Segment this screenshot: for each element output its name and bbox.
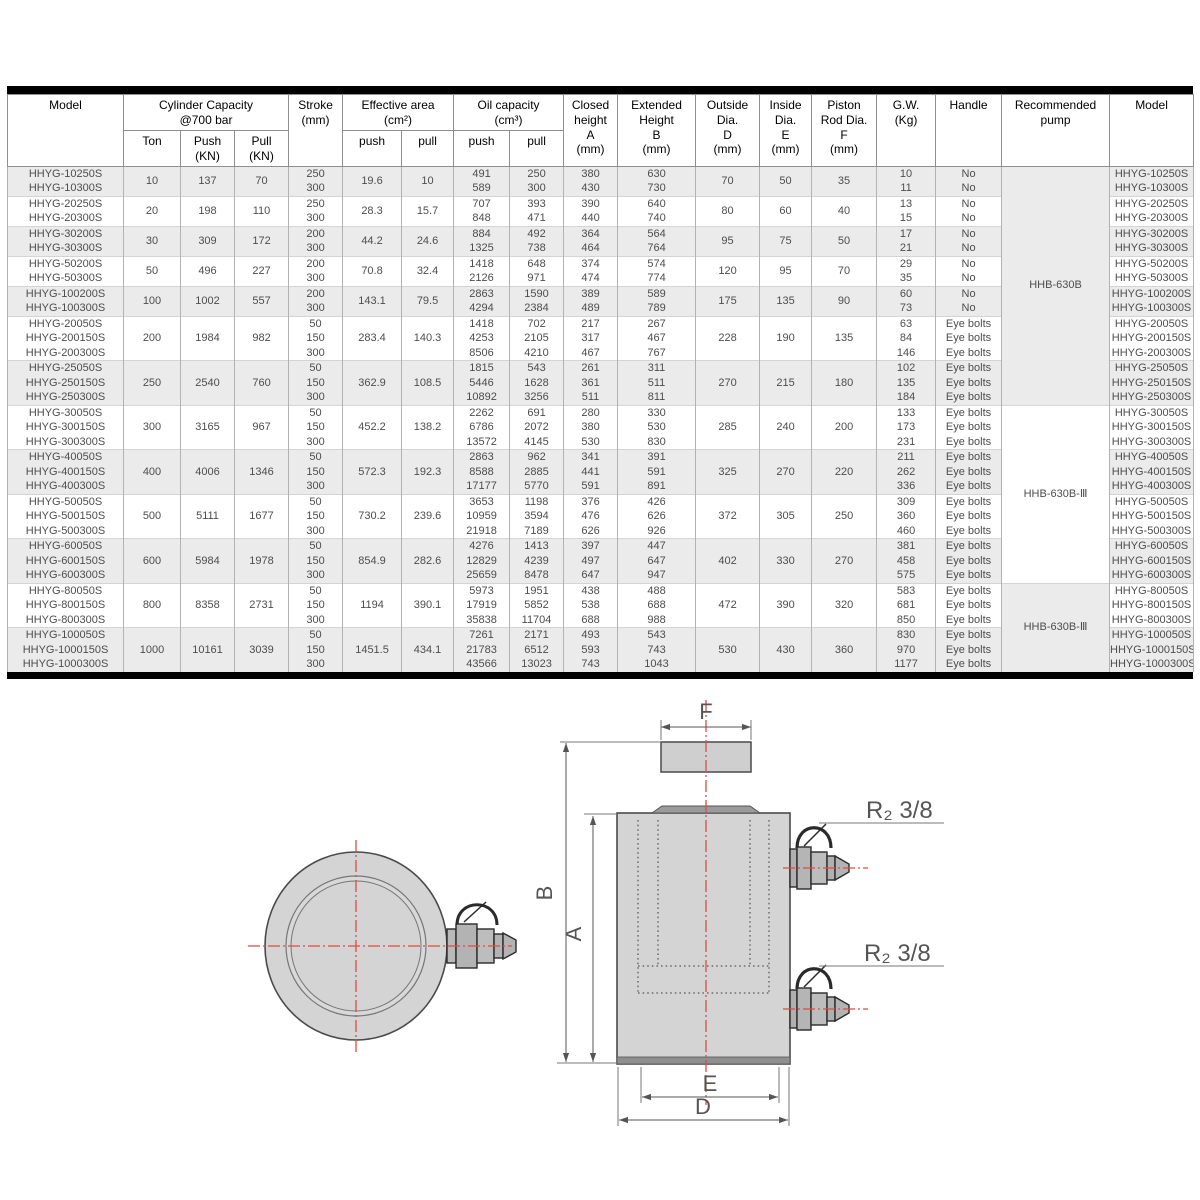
cell-inside-dia: 95 (760, 256, 812, 286)
cell-closed-height: 591 (564, 479, 618, 494)
cell-gw: 970 (877, 643, 936, 658)
cell-model: HHYG-500150S (8, 509, 124, 524)
cell-pull-kn: 227 (235, 256, 289, 286)
cell-gw: 211 (877, 450, 936, 465)
cell-extended-height: 640 (618, 196, 696, 211)
cell-model-right: HHYG-500300S (1110, 524, 1194, 539)
cell-eff-area-push: 854.9 (343, 539, 402, 584)
cell-oil-pull: 2105 (510, 331, 564, 346)
cell-oil-pull: 11704 (510, 613, 564, 628)
cell-oil-pull: 962 (510, 450, 564, 465)
cell-gw: 84 (877, 331, 936, 346)
cell-oil-pull: 3594 (510, 509, 564, 524)
cell-ton: 500 (124, 494, 181, 539)
dim-label-e: E (703, 1071, 718, 1096)
cell-extended-height: 530 (618, 420, 696, 435)
cell-pull-kn: 760 (235, 361, 289, 406)
cell-oil-push: 589 (454, 181, 510, 196)
cell-oil-pull: 738 (510, 241, 564, 256)
cell-eff-area-push: 28.3 (343, 196, 402, 226)
cell-oil-push: 21783 (454, 643, 510, 658)
cell-extended-height: 267 (618, 316, 696, 331)
cell-gw: 231 (877, 435, 936, 450)
cell-model: HHYG-200150S (8, 331, 124, 346)
cell-extended-height: 1043 (618, 657, 696, 672)
cell-model: HHYG-1000300S (8, 657, 124, 672)
cell-gw: 60 (877, 286, 936, 301)
cell-oil-pull: 2885 (510, 465, 564, 480)
cell-stroke: 150 (289, 376, 343, 391)
cell-model-right: HHYG-30200S (1110, 226, 1194, 241)
cell-model-right: HHYG-800150S (1110, 598, 1194, 613)
cell-gw: 21 (877, 241, 936, 256)
cell-handle: No (936, 226, 1002, 241)
cell-eff-area-pull: 15.7 (402, 196, 454, 226)
cell-extended-height: 511 (618, 376, 696, 391)
cell-handle: Eye bolts (936, 465, 1002, 480)
dim-label-b: B (532, 886, 557, 901)
cell-handle: No (936, 241, 1002, 256)
cell-outside-dia: 530 (696, 628, 760, 672)
cell-handle: Eye bolts (936, 598, 1002, 613)
coupler-upper-icon (783, 824, 868, 889)
cell-model-right: HHYG-20250S (1110, 196, 1194, 211)
col-header-extended-height: ExtendedHeight B(mm) (618, 95, 696, 167)
cell-model-right: HHYG-20050S (1110, 316, 1194, 331)
cell-model-right: HHYG-40050S (1110, 450, 1194, 465)
cell-push-kn: 496 (181, 256, 235, 286)
cell-eff-area-pull: 192.3 (402, 450, 454, 495)
cell-model: HHYG-100200S (8, 286, 124, 301)
cell-oil-push: 2262 (454, 405, 510, 420)
cell-model-right: HHYG-800300S (1110, 613, 1194, 628)
cell-eff-area-pull: 138.2 (402, 405, 454, 450)
cell-oil-pull: 3256 (510, 390, 564, 405)
subcol-header-area-pull: pull (402, 131, 454, 167)
cell-closed-height: 489 (564, 301, 618, 316)
cell-model: HHYG-250150S (8, 376, 124, 391)
cell-inside-dia: 215 (760, 361, 812, 406)
cell-eff-area-push: 143.1 (343, 286, 402, 316)
cell-gw: 184 (877, 390, 936, 405)
cell-extended-height: 830 (618, 435, 696, 450)
cell-gw: 381 (877, 539, 936, 554)
cell-gw: 15 (877, 211, 936, 226)
cell-piston-rod-dia: 70 (812, 256, 877, 286)
cell-gw: 29 (877, 256, 936, 271)
cell-extended-height: 688 (618, 598, 696, 613)
cell-outside-dia: 402 (696, 539, 760, 584)
cell-outside-dia: 270 (696, 361, 760, 406)
cell-model: HHYG-600150S (8, 554, 124, 569)
cell-handle: No (936, 196, 1002, 211)
cell-stroke: 300 (289, 241, 343, 256)
cell-stroke: 150 (289, 509, 343, 524)
cell-oil-push: 6786 (454, 420, 510, 435)
cell-ton: 100 (124, 286, 181, 316)
cell-oil-push: 25659 (454, 568, 510, 583)
cell-recommended-pump: HHB-630B-Ⅲ (1002, 405, 1110, 583)
cell-model: HHYG-25050S (8, 361, 124, 376)
base-plate (617, 1057, 790, 1064)
cell-piston-rod-dia: 40 (812, 196, 877, 226)
cell-piston-rod-dia: 220 (812, 450, 877, 495)
cell-oil-push: 2126 (454, 271, 510, 286)
cell-extended-height: 764 (618, 241, 696, 256)
cell-handle: Eye bolts (936, 613, 1002, 628)
cell-stroke: 300 (289, 568, 343, 583)
cell-model-right: HHYG-30050S (1110, 405, 1194, 420)
cell-closed-height: 438 (564, 583, 618, 598)
cell-model: HHYG-250300S (8, 390, 124, 405)
cell-model: HHYG-50200S (8, 256, 124, 271)
cell-model-right: HHYG-100300S (1110, 301, 1194, 316)
cell-oil-pull: 393 (510, 196, 564, 211)
cell-oil-pull: 8478 (510, 568, 564, 583)
cell-extended-height: 947 (618, 568, 696, 583)
cell-gw: 460 (877, 524, 936, 539)
cell-gw: 309 (877, 494, 936, 509)
cell-model: HHYG-30050S (8, 405, 124, 420)
cell-eff-area-pull: 390.1 (402, 583, 454, 628)
cell-oil-pull: 7189 (510, 524, 564, 539)
cell-gw: 262 (877, 465, 936, 480)
cell-inside-dia: 60 (760, 196, 812, 226)
cell-oil-pull: 2171 (510, 628, 564, 643)
subcol-header-push-kn: Push(KN) (181, 131, 235, 167)
cell-closed-height: 441 (564, 465, 618, 480)
subcol-header-oil-push: push (454, 131, 510, 167)
cell-gw: 336 (877, 479, 936, 494)
coupler-top-view-icon (447, 902, 516, 968)
cell-extended-height: 891 (618, 479, 696, 494)
cell-handle: Eye bolts (936, 361, 1002, 376)
col-header-stroke: Stroke (mm) (289, 95, 343, 167)
cell-model-right: HHYG-100050S (1110, 628, 1194, 643)
cell-handle: Eye bolts (936, 643, 1002, 658)
cell-model-right: HHYG-200150S (1110, 331, 1194, 346)
cell-handle: Eye bolts (936, 494, 1002, 509)
cell-eff-area-pull: 239.6 (402, 494, 454, 539)
cell-eff-area-pull: 140.3 (402, 316, 454, 361)
cell-extended-height: 330 (618, 405, 696, 420)
cell-eff-area-push: 362.9 (343, 361, 402, 406)
cell-closed-height: 430 (564, 181, 618, 196)
cell-gw: 681 (877, 598, 936, 613)
cell-oil-push: 7261 (454, 628, 510, 643)
cell-oil-push: 10959 (454, 509, 510, 524)
cell-stroke: 150 (289, 643, 343, 658)
port-label-lower: R₂ 3/8 (864, 940, 931, 967)
cell-gw: 173 (877, 420, 936, 435)
cell-outside-dia: 325 (696, 450, 760, 495)
cell-oil-pull: 1413 (510, 539, 564, 554)
cell-model: HHYG-400300S (8, 479, 124, 494)
cell-gw: 133 (877, 405, 936, 420)
cell-model-right: HHYG-400150S (1110, 465, 1194, 480)
cell-eff-area-push: 1194 (343, 583, 402, 628)
cell-closed-height: 397 (564, 539, 618, 554)
cell-closed-height: 493 (564, 628, 618, 643)
cell-closed-height: 317 (564, 331, 618, 346)
cell-ton: 800 (124, 583, 181, 628)
cell-closed-height: 440 (564, 211, 618, 226)
cell-stroke: 50 (289, 539, 343, 554)
spec-row: HHYG-80050S80083582731501194390.15973195… (8, 583, 1194, 598)
cell-gw: 575 (877, 568, 936, 583)
cell-oil-push: 491 (454, 166, 510, 181)
spec-row: HHYG-10250S101377025019.6104912503806307… (8, 166, 1194, 181)
cell-stroke: 150 (289, 331, 343, 346)
cell-outside-dia: 472 (696, 583, 760, 628)
cell-gw: 102 (877, 361, 936, 376)
cell-eff-area-pull: 282.6 (402, 539, 454, 584)
cell-gw: 1177 (877, 657, 936, 672)
cell-model: HHYG-20250S (8, 196, 124, 211)
cell-model-right: HHYG-1000150S (1110, 643, 1194, 658)
cell-outside-dia: 175 (696, 286, 760, 316)
col-header-handle: Handle (936, 95, 1002, 167)
cell-oil-push: 884 (454, 226, 510, 241)
cell-eff-area-pull: 434.1 (402, 628, 454, 672)
cell-handle: Eye bolts (936, 405, 1002, 420)
cell-oil-push: 17919 (454, 598, 510, 613)
cell-extended-height: 574 (618, 256, 696, 271)
cell-extended-height: 774 (618, 271, 696, 286)
cell-closed-height: 364 (564, 226, 618, 241)
capacity-line2: @700 bar (124, 113, 288, 128)
cell-ton: 1000 (124, 628, 181, 672)
technical-drawing: F B A E D R₂ 3/8 R₂ 3/8 (225, 685, 1045, 1185)
cell-oil-push: 1418 (454, 256, 510, 271)
cell-piston-rod-dia: 270 (812, 539, 877, 584)
cell-ton: 600 (124, 539, 181, 584)
cell-oil-pull: 5852 (510, 598, 564, 613)
cell-push-kn: 309 (181, 226, 235, 256)
cell-eff-area-push: 19.6 (343, 166, 402, 196)
cell-extended-height: 447 (618, 539, 696, 554)
cell-handle: Eye bolts (936, 331, 1002, 346)
cell-oil-pull: 5770 (510, 479, 564, 494)
cell-eff-area-pull: 108.5 (402, 361, 454, 406)
cell-stroke: 50 (289, 361, 343, 376)
cell-extended-height: 589 (618, 286, 696, 301)
cell-model: HHYG-1000150S (8, 643, 124, 658)
cell-closed-height: 389 (564, 286, 618, 301)
col-header-model: Model (8, 95, 124, 167)
cell-closed-height: 380 (564, 166, 618, 181)
cell-pull-kn: 1978 (235, 539, 289, 584)
cell-ton: 20 (124, 196, 181, 226)
cell-stroke: 300 (289, 435, 343, 450)
cell-model: HHYG-40050S (8, 450, 124, 465)
cell-ton: 50 (124, 256, 181, 286)
cell-stroke: 300 (289, 346, 343, 361)
cell-closed-height: 530 (564, 435, 618, 450)
cell-stroke: 300 (289, 524, 343, 539)
cell-closed-height: 217 (564, 316, 618, 331)
cell-model: HHYG-10250S (8, 166, 124, 181)
subcol-header-pull-kn: Pull(KN) (235, 131, 289, 167)
cell-oil-push: 3653 (454, 494, 510, 509)
cell-extended-height: 543 (618, 628, 696, 643)
cell-extended-height: 767 (618, 346, 696, 361)
cell-oil-pull: 13023 (510, 657, 564, 672)
cell-model-right: HHYG-200300S (1110, 346, 1194, 361)
coupler-lower-icon (783, 965, 868, 1030)
stroke-line2: (mm) (289, 113, 342, 128)
cell-inside-dia: 135 (760, 286, 812, 316)
cell-stroke: 250 (289, 166, 343, 181)
cell-oil-push: 21918 (454, 524, 510, 539)
cell-handle: No (936, 301, 1002, 316)
cell-closed-height: 361 (564, 376, 618, 391)
cell-push-kn: 198 (181, 196, 235, 226)
cell-oil-push: 13572 (454, 435, 510, 450)
cell-extended-height: 789 (618, 301, 696, 316)
cell-extended-height: 630 (618, 166, 696, 181)
cell-model-right: HHYG-1000300S (1110, 657, 1194, 672)
cell-eff-area-push: 730.2 (343, 494, 402, 539)
cylinder-body (617, 813, 790, 1064)
cell-oil-pull: 1590 (510, 286, 564, 301)
cell-handle: Eye bolts (936, 420, 1002, 435)
cell-inside-dia: 240 (760, 405, 812, 450)
cell-push-kn: 2540 (181, 361, 235, 406)
cell-handle: Eye bolts (936, 479, 1002, 494)
cell-model-right: HHYG-25050S (1110, 361, 1194, 376)
cell-outside-dia: 228 (696, 316, 760, 361)
cell-stroke: 250 (289, 196, 343, 211)
cell-oil-push: 1325 (454, 241, 510, 256)
cell-oil-push: 4253 (454, 331, 510, 346)
capacity-line1: Cylinder Capacity (124, 98, 288, 113)
spec-table-grid: Model Cylinder Capacity @700 bar Stroke … (7, 94, 1194, 672)
cell-push-kn: 10161 (181, 628, 235, 672)
cell-outside-dia: 120 (696, 256, 760, 286)
cell-oil-push: 8588 (454, 465, 510, 480)
cell-model-right: HHYG-30300S (1110, 241, 1194, 256)
cell-inside-dia: 50 (760, 166, 812, 196)
cell-eff-area-pull: 79.5 (402, 286, 454, 316)
cell-piston-rod-dia: 200 (812, 405, 877, 450)
cell-gw: 13 (877, 196, 936, 211)
cell-stroke: 50 (289, 405, 343, 420)
cell-extended-height: 591 (618, 465, 696, 480)
cell-model-right: HHYG-50300S (1110, 271, 1194, 286)
oil-capacity-line1: Oil capacity (454, 98, 563, 113)
cell-stroke: 50 (289, 316, 343, 331)
cell-pull-kn: 982 (235, 316, 289, 361)
cell-handle: Eye bolts (936, 509, 1002, 524)
cell-piston-rod-dia: 320 (812, 583, 877, 628)
cell-closed-height: 374 (564, 256, 618, 271)
cell-model: HHYG-100300S (8, 301, 124, 316)
cell-oil-push: 17177 (454, 479, 510, 494)
cell-oil-pull: 492 (510, 226, 564, 241)
cell-model-right: HHYG-20300S (1110, 211, 1194, 226)
cell-model: HHYG-30300S (8, 241, 124, 256)
cell-handle: Eye bolts (936, 554, 1002, 569)
cell-oil-push: 2863 (454, 286, 510, 301)
cell-handle: Eye bolts (936, 524, 1002, 539)
cell-stroke: 300 (289, 181, 343, 196)
cell-model: HHYG-800150S (8, 598, 124, 613)
cell-model: HHYG-20050S (8, 316, 124, 331)
cell-model-right: HHYG-50200S (1110, 256, 1194, 271)
cell-ton: 400 (124, 450, 181, 495)
cell-gw: 10 (877, 166, 936, 181)
cell-piston-rod-dia: 90 (812, 286, 877, 316)
cell-gw: 850 (877, 613, 936, 628)
cell-outside-dia: 95 (696, 226, 760, 256)
cell-oil-pull: 250 (510, 166, 564, 181)
cell-inside-dia: 270 (760, 450, 812, 495)
cell-model: HHYG-20300S (8, 211, 124, 226)
cell-model-right: HHYG-80050S (1110, 583, 1194, 598)
cell-model: HHYG-300150S (8, 420, 124, 435)
cell-model-right: HHYG-600150S (1110, 554, 1194, 569)
cell-model: HHYG-10300S (8, 181, 124, 196)
cell-piston-rod-dia: 135 (812, 316, 877, 361)
cell-pull-kn: 172 (235, 226, 289, 256)
cell-stroke: 300 (289, 301, 343, 316)
cell-model: HHYG-80050S (8, 583, 124, 598)
cell-model-right: HHYG-60050S (1110, 539, 1194, 554)
cell-gw: 17 (877, 226, 936, 241)
cell-model: HHYG-600300S (8, 568, 124, 583)
cell-extended-height: 647 (618, 554, 696, 569)
cell-push-kn: 3165 (181, 405, 235, 450)
cell-oil-push: 2863 (454, 450, 510, 465)
cell-model: HHYG-100050S (8, 628, 124, 643)
cell-handle: Eye bolts (936, 539, 1002, 554)
subcol-header-ton: Ton (124, 131, 181, 167)
cell-handle: Eye bolts (936, 450, 1002, 465)
cell-oil-pull: 2384 (510, 301, 564, 316)
cell-pull-kn: 1346 (235, 450, 289, 495)
cell-stroke: 300 (289, 479, 343, 494)
cell-closed-height: 743 (564, 657, 618, 672)
cell-stroke: 300 (289, 657, 343, 672)
cell-push-kn: 4006 (181, 450, 235, 495)
cell-stroke: 150 (289, 598, 343, 613)
cell-oil-push: 4276 (454, 539, 510, 554)
col-header-inside-dia: InsideDia. E(mm) (760, 95, 812, 167)
cell-eff-area-push: 1451.5 (343, 628, 402, 672)
cell-handle: Eye bolts (936, 568, 1002, 583)
cell-model-right: HHYG-10300S (1110, 181, 1194, 196)
cell-pull-kn: 2731 (235, 583, 289, 628)
col-header-gw: G.W.(Kg) (877, 95, 936, 167)
cell-stroke: 300 (289, 390, 343, 405)
cell-oil-push: 35838 (454, 613, 510, 628)
cell-gw: 35 (877, 271, 936, 286)
subcol-header-oil-pull: pull (510, 131, 564, 167)
dim-label-f: F (699, 699, 712, 724)
cell-closed-height: 476 (564, 509, 618, 524)
cell-inside-dia: 330 (760, 539, 812, 584)
cell-extended-height: 743 (618, 643, 696, 658)
cell-model-right: HHYG-10250S (1110, 166, 1194, 181)
cell-eff-area-push: 283.4 (343, 316, 402, 361)
cell-oil-pull: 648 (510, 256, 564, 271)
col-header-oil-capacity: Oil capacity (cm³) (454, 95, 564, 131)
oil-capacity-line2: (cm³) (454, 113, 563, 128)
spec-table: Model Cylinder Capacity @700 bar Stroke … (7, 86, 1193, 679)
cell-oil-push: 1418 (454, 316, 510, 331)
cell-extended-height: 730 (618, 181, 696, 196)
